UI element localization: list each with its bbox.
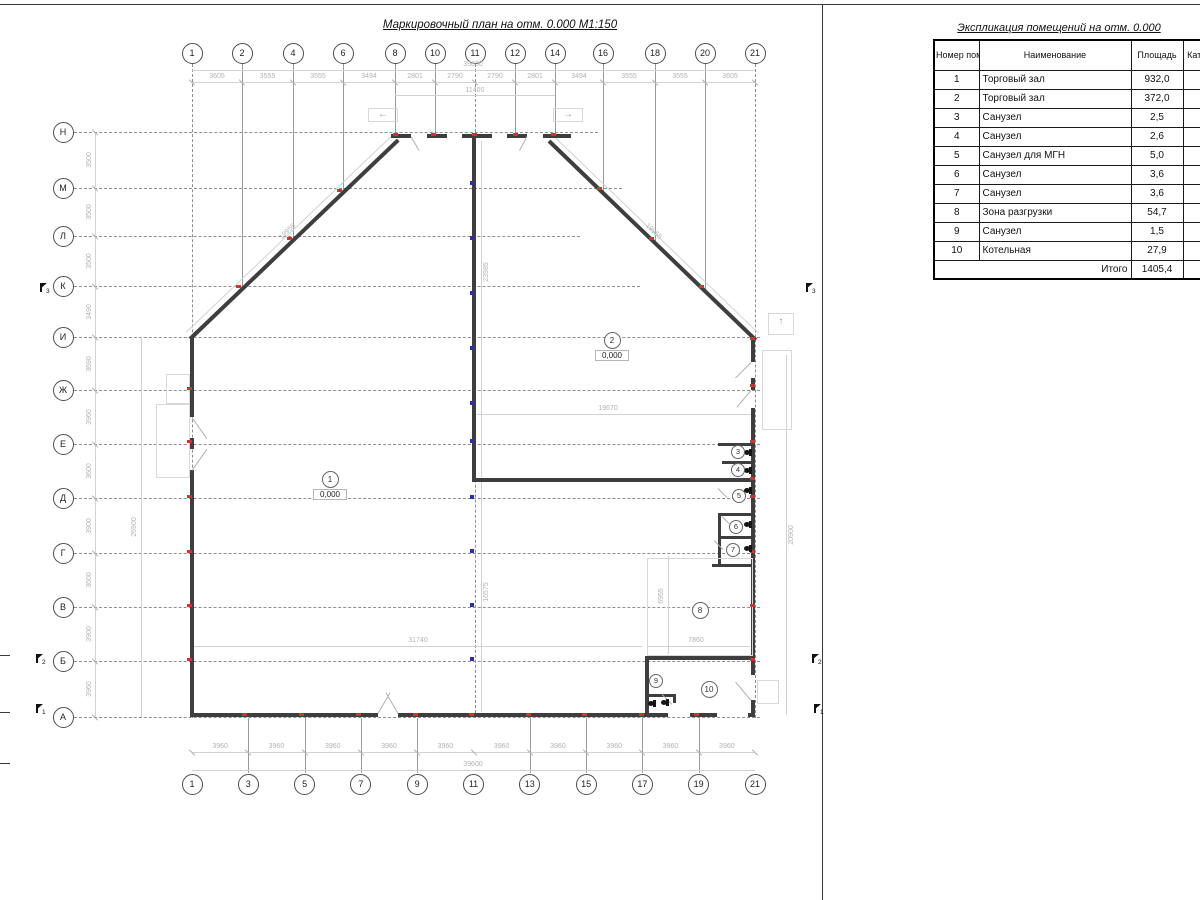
table-row: 3Санузел2,5 <box>934 108 1200 127</box>
cell-area: 3,6 <box>1131 184 1183 203</box>
dim-line <box>194 646 642 647</box>
axis-line-top-8 <box>395 64 396 136</box>
dim-label-bottom-total: 39600 <box>448 761 498 769</box>
cell-area: 2,5 <box>1131 108 1183 127</box>
axis-bubble-bottom-7: 7 <box>350 774 371 795</box>
dim-label: 2801 <box>398 73 432 81</box>
axis-bubble-row-В: В <box>53 597 74 618</box>
axis-bubble-top-8: 8 <box>385 43 406 64</box>
frame-top-line <box>0 4 1200 5</box>
cell-cat <box>1183 70 1200 89</box>
dim-line <box>481 141 482 477</box>
dim-label: 3500 <box>86 197 94 227</box>
wall-diagonal-left <box>189 139 400 341</box>
table-row: 1Торговый зал932,0 <box>934 70 1200 89</box>
column-marker-red <box>431 133 436 136</box>
axis-line-top-4 <box>293 64 294 242</box>
dim-line <box>481 482 482 712</box>
column-marker-red <box>187 604 192 607</box>
cell-area: 372,0 <box>1131 89 1183 108</box>
axis-bubble-row-Д: Д <box>53 488 74 509</box>
dim-label: 23985 <box>483 257 491 287</box>
column-marker-red <box>287 237 292 240</box>
cell-area: 932,0 <box>1131 70 1183 89</box>
toilet-icon <box>661 700 667 705</box>
axis-line-row-А <box>74 717 760 718</box>
column-marker-red <box>649 237 654 240</box>
axis-line-top-10 <box>435 64 436 136</box>
cell-num: 4 <box>934 127 979 146</box>
section-mark-stem <box>806 283 808 292</box>
axis-line-row-Л <box>74 236 580 237</box>
cell-num: 10 <box>934 241 979 260</box>
axis-line-bottom-19 <box>699 718 700 773</box>
dim-label: 3494 <box>562 73 596 81</box>
axis-line-top-14 <box>555 64 556 136</box>
door-swing <box>519 136 527 151</box>
axis-line-row-Д <box>74 498 760 499</box>
axis-line-bottom-15 <box>586 718 587 773</box>
axis-bubble-row-Н: Н <box>53 122 74 143</box>
dim-label: 3960 <box>316 743 350 751</box>
cell-name: Торговый зал <box>979 70 1131 89</box>
cell-area: 3,6 <box>1131 165 1183 184</box>
margin-tick <box>0 763 10 764</box>
column-marker-red <box>639 713 644 716</box>
dim-label: 3960 <box>541 743 575 751</box>
cell-num: 2 <box>934 89 979 108</box>
axis-line-row-К <box>74 286 640 287</box>
entrance-arrow-right-icon: → <box>553 109 583 121</box>
rooms-table-area: Экспликация помещений на отм. 0.000 Номе… <box>933 22 1200 280</box>
cell-area: 1,5 <box>1131 222 1183 241</box>
cell-name: Санузел <box>979 184 1131 203</box>
axis-bubble-row-Ж: Ж <box>53 380 74 401</box>
column-marker-red <box>187 550 192 553</box>
table-row: 2Торговый зал372,0 <box>934 89 1200 108</box>
section-mark-label: 2 <box>42 659 52 667</box>
cell-cat <box>1183 222 1200 241</box>
axis-bubble-bottom-17: 17 <box>632 774 653 795</box>
dim-label: 3555 <box>663 73 697 81</box>
door-swing <box>735 362 751 378</box>
axis-bubble-row-И: И <box>53 327 74 348</box>
wall <box>751 700 755 717</box>
toilet-icon <box>744 546 750 551</box>
column-marker-red <box>597 187 602 190</box>
margin-tick <box>0 712 10 713</box>
table-row: 9Санузел1,5 <box>934 222 1200 241</box>
axis-bubble-top-6: 6 <box>333 43 354 64</box>
column-marker-red <box>582 713 587 716</box>
cell-name: Санузел <box>979 222 1131 241</box>
dim-label: 3500 <box>86 246 94 276</box>
room-circle-9: 9 <box>649 674 663 688</box>
dim-label: 16575 <box>483 577 491 607</box>
column-marker-blue <box>470 439 474 443</box>
dim-label: 3555 <box>301 73 335 81</box>
wall <box>190 337 194 417</box>
column-marker-red <box>750 477 755 480</box>
column-marker-blue <box>470 495 474 499</box>
room-circle-2: 2 <box>604 332 621 349</box>
column-marker-blue <box>470 346 474 350</box>
dim-line <box>192 70 755 71</box>
dim-label: 3960 <box>203 743 237 751</box>
axis-line-bottom-13 <box>530 718 531 773</box>
column-marker-blue <box>470 291 474 295</box>
column-marker-red <box>187 495 192 498</box>
section-mark-label: 2 <box>818 659 828 667</box>
axis-line-bottom-3 <box>248 718 249 773</box>
cell-num: 8 <box>934 203 979 222</box>
rooms-table: Номер помещ. Наименование Площадь Кат. п… <box>933 39 1200 280</box>
dim-label: 3555 <box>251 73 285 81</box>
axis-bubble-top-21: 21 <box>745 43 766 64</box>
column-marker-red <box>393 133 398 136</box>
column-marker-red <box>187 658 192 661</box>
door-swing <box>736 390 751 407</box>
dim-line <box>95 132 96 717</box>
axis-bubble-bottom-3: 3 <box>238 774 259 795</box>
cell-cat <box>1183 165 1200 184</box>
column-marker-red <box>750 658 755 661</box>
header-category: Кат. пом <box>1183 40 1200 70</box>
column-marker-red <box>750 384 755 387</box>
dim-label-right-total: 20900 <box>788 520 796 550</box>
dim-label: 3960 <box>86 402 94 432</box>
cell-cat <box>1183 127 1200 146</box>
axis-bubble-bottom-13: 13 <box>519 774 540 795</box>
column-marker-red <box>469 713 474 716</box>
column-marker-red <box>699 285 704 288</box>
dim-label: 3960 <box>710 743 744 751</box>
cell-name: Зона разгрузки <box>979 203 1131 222</box>
dim-label: 2801 <box>518 73 552 81</box>
entrance-arrow-left-icon: ← <box>368 109 398 121</box>
table-row: 7Санузел3,6 <box>934 184 1200 203</box>
axis-bubble-bottom-19: 19 <box>688 774 709 795</box>
header-number: Номер помещ. <box>934 40 979 70</box>
header-name: Наименование <box>979 40 1131 70</box>
cell-cat <box>1183 241 1200 260</box>
door-swing <box>386 692 399 713</box>
dim-label: 2790 <box>438 73 472 81</box>
cell-name: Санузел <box>979 108 1131 127</box>
wall <box>718 513 755 516</box>
axis-bubble-row-Л: Л <box>53 226 74 247</box>
axis-line-bottom-9 <box>417 718 418 773</box>
section-mark-stem <box>36 704 38 713</box>
axis-bubble-bottom-5: 5 <box>294 774 315 795</box>
cell-num: 3 <box>934 108 979 127</box>
column-marker-red <box>750 604 755 607</box>
axis-bubble-row-Б: Б <box>53 651 74 672</box>
plan-title: Маркировочный план на отм. 0.000 М1:150 <box>330 19 670 31</box>
cell-num: 5 <box>934 146 979 165</box>
cell-name: Санузел <box>979 127 1131 146</box>
cell-area: 27,9 <box>1131 241 1183 260</box>
dim-label: 3500 <box>86 145 94 175</box>
section-mark-label: 1 <box>42 709 52 717</box>
axis-bubble-bottom-21: 21 <box>745 774 766 795</box>
dim-label: 3960 <box>86 674 94 704</box>
dim-label: 3555 <box>612 73 646 81</box>
axis-line-top-12 <box>515 64 516 136</box>
axis-line-bottom-17 <box>642 718 643 773</box>
table-total-row: Итого1405,4 <box>934 260 1200 279</box>
section-mark-label: 3 <box>812 288 822 296</box>
wall <box>645 656 755 660</box>
axis-bubble-row-Е: Е <box>53 434 74 455</box>
column-marker-red <box>750 495 755 498</box>
cell-cat <box>1183 203 1200 222</box>
column-marker-blue <box>470 181 474 185</box>
column-marker-red <box>472 133 477 136</box>
cell-num: 9 <box>934 222 979 241</box>
room-circle-3: 3 <box>731 445 745 459</box>
dim-label: 3960 <box>485 743 519 751</box>
dim-label: 3960 <box>372 743 406 751</box>
axis-bubble-bottom-9: 9 <box>407 774 428 795</box>
column-marker-red <box>513 133 518 136</box>
cell-num: 7 <box>934 184 979 203</box>
dim-line <box>395 95 555 96</box>
table-title: Экспликация помещений на отм. 0.000 <box>933 22 1185 34</box>
outline <box>156 404 190 478</box>
elevation-label-room1: 0,000 <box>313 489 347 500</box>
dim-label-top-inner: 11400 <box>450 87 500 95</box>
column-marker-red <box>337 189 342 192</box>
axis-line-row-И <box>74 337 760 338</box>
axis-bubble-top-18: 18 <box>645 43 666 64</box>
section-mark-stem <box>814 704 816 713</box>
axis-bubble-row-М: М <box>53 178 74 199</box>
cell-name: Торговый зал <box>979 89 1131 108</box>
column-marker-red <box>413 713 418 716</box>
dim-label-left-total: 26900 <box>131 512 139 542</box>
axis-line-row-Г <box>74 553 760 554</box>
axis-bubble-row-А: А <box>53 707 74 728</box>
dim-label: 3690 <box>86 349 94 379</box>
axis-bubble-bottom-1: 1 <box>182 774 203 795</box>
cell-num: 6 <box>934 165 979 184</box>
dim-label: 3960 <box>428 743 462 751</box>
table-header-row: Номер помещ. Наименование Площадь Кат. п… <box>934 40 1200 70</box>
section-mark-label: 3 <box>46 288 56 296</box>
wall <box>472 136 476 481</box>
dim-label: 3494 <box>352 73 386 81</box>
door-swing <box>718 488 728 498</box>
section-mark-label: 1 <box>820 709 830 717</box>
axis-bubble-top-20: 20 <box>695 43 716 64</box>
dim-label-top-total: 39600 <box>448 61 498 69</box>
dim-label: 3605 <box>713 73 747 81</box>
dim-label-room1-width: 31740 <box>398 637 438 645</box>
column-marker-blue <box>470 657 474 661</box>
cell-area: 54,7 <box>1131 203 1183 222</box>
axis-bubble-row-Г: Г <box>53 543 74 564</box>
axis-line-bottom-5 <box>305 718 306 773</box>
wall <box>720 536 755 539</box>
drawing-sheet: Маркировочный план на отм. 0.000 М1:150 … <box>0 0 1200 900</box>
axis-line-row-Н <box>74 132 598 133</box>
column-marker-red <box>694 713 699 716</box>
section-mark-stem <box>812 654 814 663</box>
section-mark-stem <box>40 283 42 292</box>
dim-label: 3600 <box>86 565 94 595</box>
wall <box>718 513 721 564</box>
dim-label: 3960 <box>654 743 688 751</box>
dim-label: 3605 <box>200 73 234 81</box>
outline <box>762 350 792 430</box>
table-row: 8Зона разгрузки54,7 <box>934 203 1200 222</box>
column-marker-red <box>551 133 556 136</box>
column-marker-red <box>242 713 247 716</box>
wall <box>398 713 668 717</box>
column-marker-red <box>356 713 361 716</box>
outline <box>757 680 779 704</box>
door-swing <box>192 417 208 439</box>
cell-area: 2,6 <box>1131 127 1183 146</box>
margin-tick <box>0 655 10 656</box>
axis-bubble-top-10: 10 <box>425 43 446 64</box>
cell-name: Санузел <box>979 165 1131 184</box>
room-circle-7: 7 <box>726 543 740 557</box>
dim-label-hall-width: 19670 <box>588 405 628 413</box>
wall <box>673 694 676 703</box>
dim-label: 3960 <box>597 743 631 751</box>
column-marker-blue <box>470 549 474 553</box>
section-mark-stem <box>36 654 38 663</box>
cell-name: Санузел для МГН <box>979 146 1131 165</box>
entrance-arrow-up-icon: ↑ <box>769 316 793 330</box>
axis-bubble-top-14: 14 <box>545 43 566 64</box>
wall <box>190 470 194 717</box>
axis-line-bottom-7 <box>361 718 362 773</box>
room-circle-10: 10 <box>701 681 718 698</box>
room-circle-5: 5 <box>732 489 746 503</box>
axis-bubble-bottom-11: 11 <box>463 774 484 795</box>
room-circle-8: 8 <box>692 602 709 619</box>
column-marker-red <box>526 713 531 716</box>
room-circle-1: 1 <box>322 471 339 488</box>
table-row: 5Санузел для МГН5,0 <box>934 146 1200 165</box>
toilet-icon <box>744 522 750 527</box>
wall-diagonal-right <box>548 140 758 342</box>
room-circle-6: 6 <box>729 520 743 534</box>
room-circle-4: 4 <box>731 463 745 477</box>
axis-bubble-top-16: 16 <box>593 43 614 64</box>
elevation-label-room2: 0,000 <box>595 350 629 361</box>
cell-area: 5,0 <box>1131 146 1183 165</box>
axis-bubble-top-2: 2 <box>232 43 253 64</box>
dim-label: 3900 <box>86 619 94 649</box>
column-marker-blue <box>470 236 474 240</box>
wall <box>462 134 492 138</box>
axis-bubble-top-12: 12 <box>505 43 526 64</box>
cell-cat <box>1183 146 1200 165</box>
axis-line-top-2 <box>242 64 243 291</box>
column-marker-red <box>299 713 304 716</box>
dim-line <box>192 770 755 771</box>
table-row: 10Котельная27,9 <box>934 241 1200 260</box>
dim-label: 2790 <box>478 73 512 81</box>
dim-label: 3900 <box>86 511 94 541</box>
dim-label: 3600 <box>86 456 94 486</box>
axis-line-row-Б <box>74 661 760 662</box>
axis-line-top-18 <box>655 64 656 242</box>
column-marker-blue <box>470 401 474 405</box>
cell-cat <box>1183 89 1200 108</box>
dim-label: 3960 <box>259 743 293 751</box>
dim-line <box>477 414 751 415</box>
door-swing <box>735 682 751 701</box>
dim-line <box>141 337 142 717</box>
cell-name: Котельная <box>979 241 1131 260</box>
table-row: 6Санузел3,6 <box>934 165 1200 184</box>
total-label: Итого <box>934 260 1131 279</box>
wall <box>190 713 378 717</box>
dim-label: 3490 <box>86 297 94 327</box>
door-swing <box>192 449 208 471</box>
cell-cat <box>1183 108 1200 127</box>
toilet-icon <box>648 701 654 706</box>
column-marker-red <box>750 440 755 443</box>
column-marker-red <box>187 387 192 390</box>
table-row: 4Санузел2,6 <box>934 127 1200 146</box>
axis-bubble-top-1: 1 <box>182 43 203 64</box>
frame-divider-line <box>822 4 823 900</box>
column-marker-red <box>187 440 192 443</box>
axis-bubble-top-4: 4 <box>283 43 304 64</box>
column-marker-blue <box>470 603 474 607</box>
cell-num: 1 <box>934 70 979 89</box>
total-value: 1405,4 <box>1131 260 1183 279</box>
header-area: Площадь <box>1131 40 1183 70</box>
column-marker-red <box>236 285 241 288</box>
axis-bubble-bottom-15: 15 <box>576 774 597 795</box>
wall <box>543 134 571 138</box>
axis-line-top-21 <box>755 64 756 718</box>
axis-line-top-20 <box>705 64 706 290</box>
wall <box>472 478 755 482</box>
cell-cat <box>1183 184 1200 203</box>
column-marker-red <box>750 337 755 340</box>
door-swing <box>411 136 420 150</box>
cell-cat <box>1183 260 1200 279</box>
